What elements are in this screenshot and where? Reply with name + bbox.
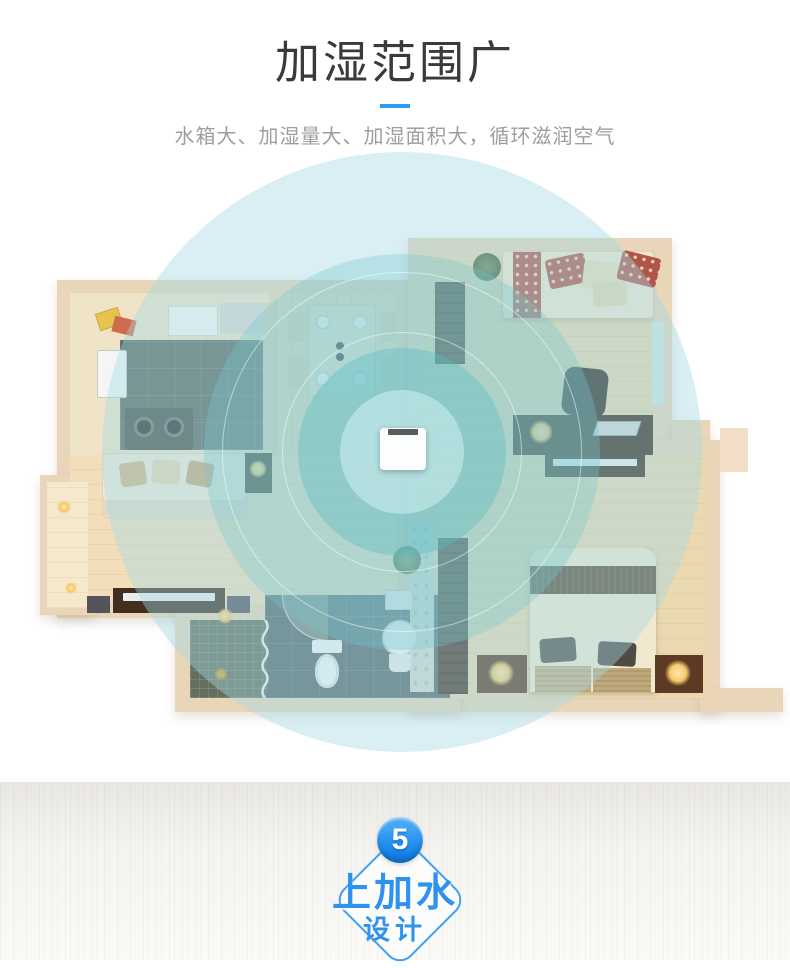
- next-feature-section: 5 上加水 设计: [0, 782, 790, 960]
- speaker: [87, 596, 110, 613]
- header-section: 加湿范围广 水箱大、加湿量大、加湿面积大，循环滋润空气: [0, 0, 790, 150]
- corner-step-wall: [700, 688, 783, 712]
- title-underline: [380, 104, 410, 108]
- nightstand-lamp: [665, 660, 691, 686]
- balcony-lamp: [65, 582, 77, 594]
- page-subtitle: 水箱大、加湿量大、加湿面积大，循环滋润空气: [0, 120, 790, 149]
- humidifier-vent: [388, 429, 418, 435]
- feature-number-badge: 5: [377, 817, 423, 863]
- feature-subtitle: 设计: [0, 908, 790, 947]
- page-title: 加湿范围广: [0, 0, 790, 91]
- floorplan: [35, 150, 755, 765]
- balcony-lamp: [57, 500, 71, 514]
- bay-window-wall: [720, 428, 748, 472]
- feature-number: 5: [392, 823, 409, 856]
